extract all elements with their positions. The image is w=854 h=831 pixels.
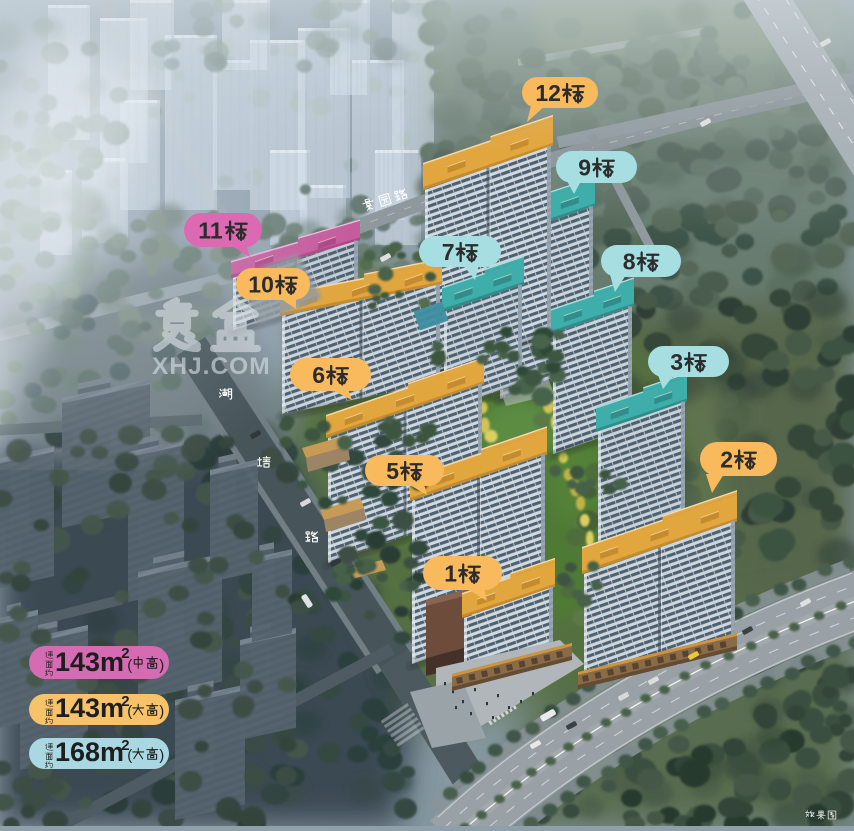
svg-text:): ) bbox=[159, 657, 164, 674]
svg-text:): ) bbox=[159, 703, 164, 720]
svg-text:7: 7 bbox=[442, 239, 455, 265]
svg-text:2: 2 bbox=[720, 446, 733, 472]
svg-text:143m: 143m bbox=[55, 647, 124, 677]
svg-text:9: 9 bbox=[578, 154, 591, 180]
svg-text:8: 8 bbox=[623, 248, 636, 274]
svg-text:(: ( bbox=[127, 657, 132, 674]
svg-text:): ) bbox=[159, 747, 164, 764]
svg-text:6: 6 bbox=[312, 362, 325, 388]
svg-text:143m: 143m bbox=[55, 693, 124, 723]
svg-text:11: 11 bbox=[198, 217, 223, 243]
svg-text:5: 5 bbox=[386, 458, 399, 484]
svg-text:10: 10 bbox=[248, 271, 274, 297]
svg-text:(: ( bbox=[127, 747, 132, 764]
svg-text:(: ( bbox=[127, 703, 132, 720]
svg-text:XHJ.COM: XHJ.COM bbox=[152, 353, 271, 380]
svg-text:1: 1 bbox=[444, 560, 457, 586]
svg-text:168m: 168m bbox=[55, 737, 124, 767]
svg-text:3: 3 bbox=[670, 349, 683, 375]
svg-text:12: 12 bbox=[535, 80, 561, 106]
